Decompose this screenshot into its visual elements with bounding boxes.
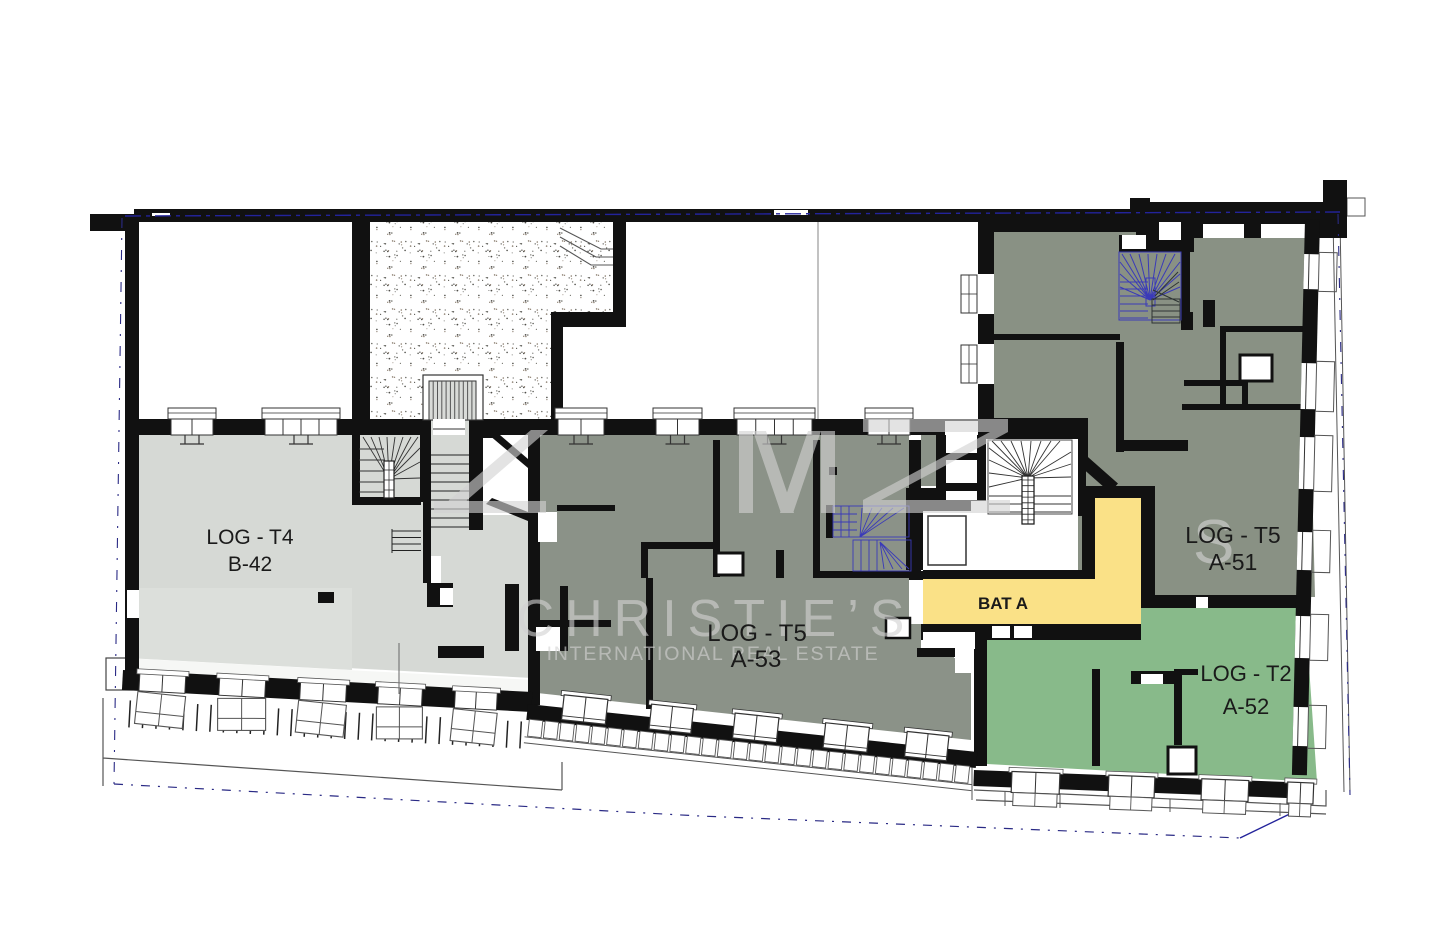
svg-text:A-53: A-53 — [731, 646, 782, 673]
svg-text:LOG - T4: LOG - T4 — [206, 526, 293, 549]
svg-text:LOG - T5: LOG - T5 — [707, 620, 807, 647]
svg-text:A-51: A-51 — [1209, 549, 1258, 575]
svg-text:LOG - T5: LOG - T5 — [1185, 522, 1280, 548]
svg-text:LOG - T2: LOG - T2 — [1200, 661, 1291, 686]
svg-text:BAT A: BAT A — [978, 594, 1028, 613]
svg-text:A-52: A-52 — [1223, 694, 1269, 719]
svg-text:B-42: B-42 — [228, 553, 272, 576]
